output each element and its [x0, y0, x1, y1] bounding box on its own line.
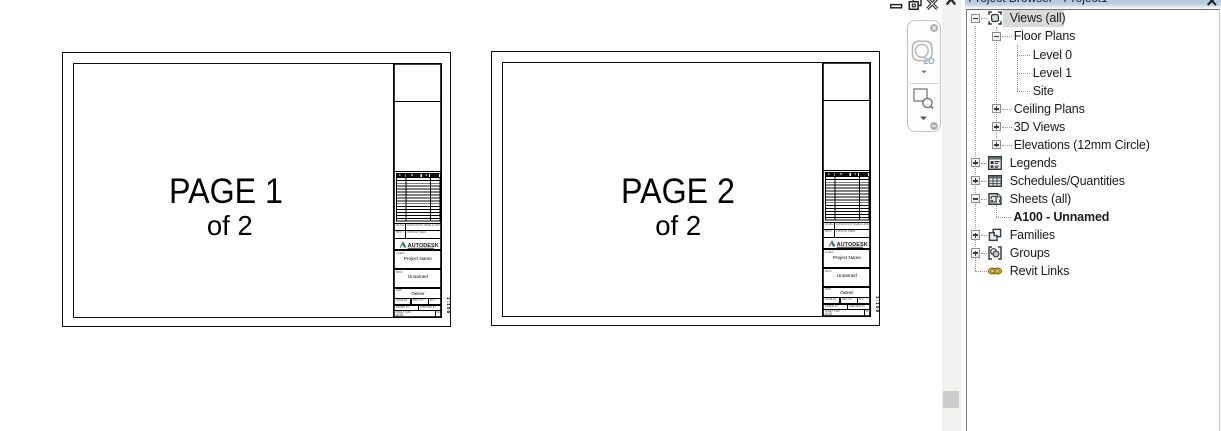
svg-text:2D: 2D	[923, 56, 935, 66]
